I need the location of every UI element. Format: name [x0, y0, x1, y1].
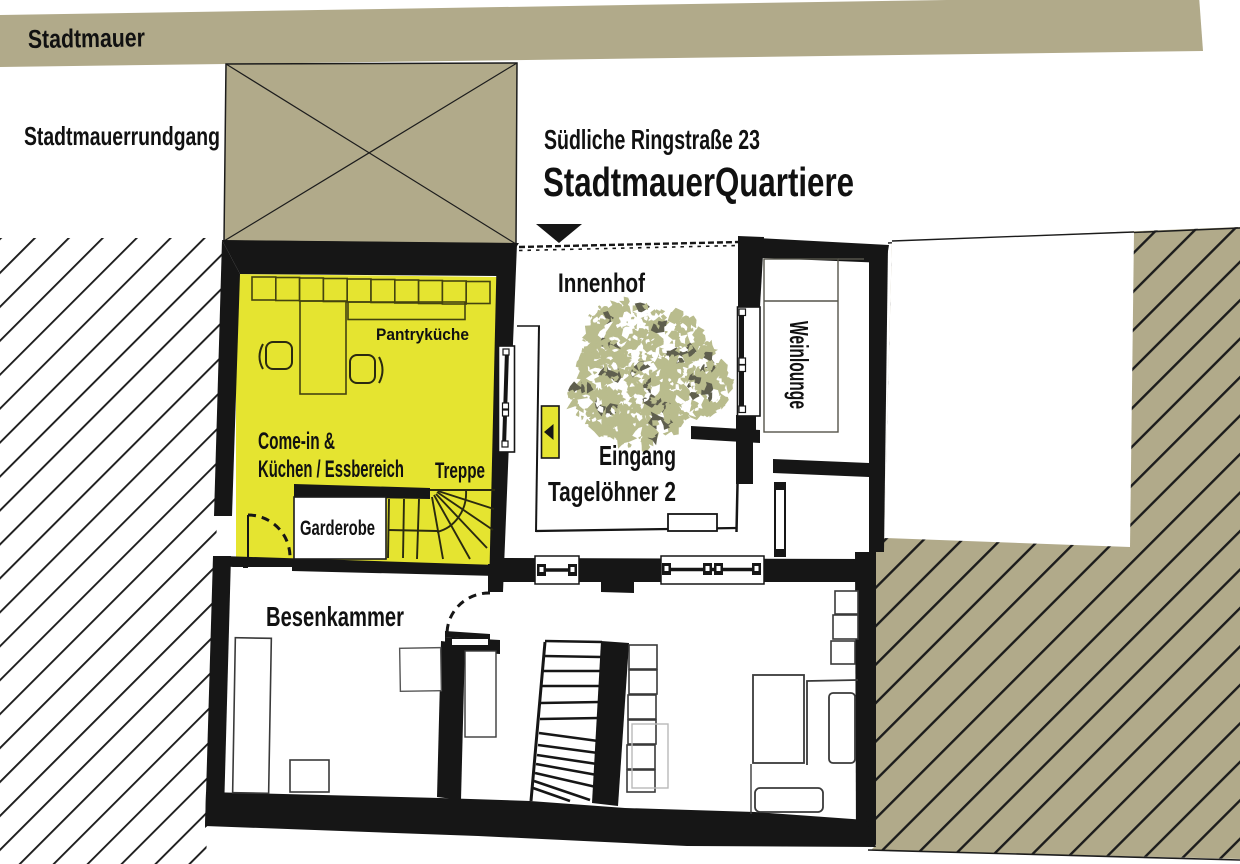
- svg-text:Come-in &: Come-in &: [258, 428, 335, 455]
- svg-text:Küchen / Essbereich: Küchen / Essbereich: [258, 456, 404, 483]
- svg-text:Besenkammer: Besenkammer: [266, 601, 404, 632]
- svg-text:Pantryküche: Pantryküche: [376, 325, 469, 344]
- svg-text:Stadtmauerrundgang: Stadtmauerrundgang: [24, 121, 220, 151]
- svg-text:Tagelöhner 2: Tagelöhner 2: [548, 476, 676, 507]
- svg-text:Eingang: Eingang: [599, 440, 676, 471]
- svg-text:Garderobe: Garderobe: [300, 517, 375, 540]
- svg-text:Weinlounge: Weinlounge: [784, 321, 814, 409]
- svg-text:Treppe: Treppe: [435, 458, 485, 483]
- svg-text:Südliche Ringstraße 23: Südliche Ringstraße 23: [544, 124, 760, 155]
- svg-text:Innenhof: Innenhof: [558, 268, 646, 298]
- svg-text:StadtmauerQuartiere: StadtmauerQuartiere: [543, 159, 854, 205]
- svg-text:Stadtmauer: Stadtmauer: [28, 22, 145, 54]
